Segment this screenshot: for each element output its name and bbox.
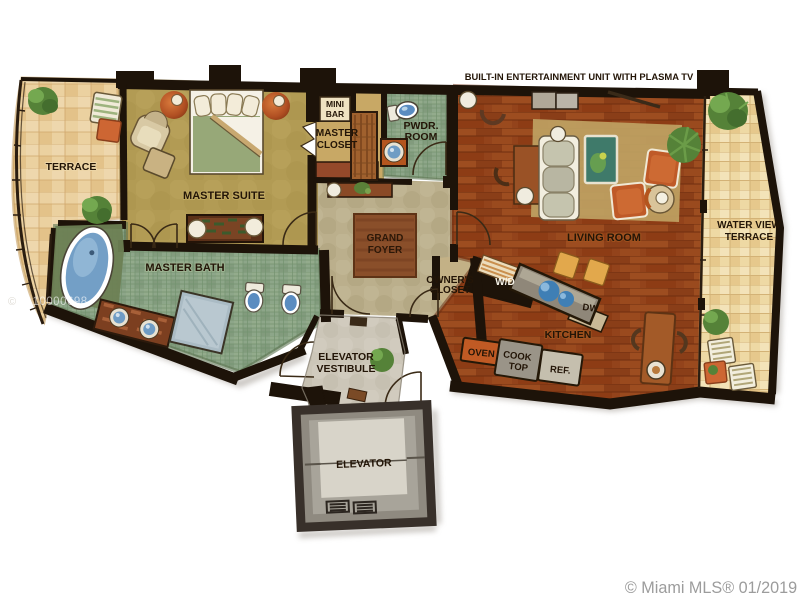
svg-text:TERRACE: TERRACE [46,161,97,173]
svg-text:W/D: W/D [495,277,514,288]
svg-text:KITCHEN: KITCHEN [545,329,592,341]
svg-text:MASTER: MASTER [316,128,359,139]
svg-text:CLOSET: CLOSET [317,140,358,151]
svg-text:ELEVATOR: ELEVATOR [336,457,392,471]
svg-text:VESTIBULE: VESTIBULE [317,363,376,375]
svg-text:CLOSET: CLOSET [430,285,471,296]
svg-text:WATER VIEW: WATER VIEW [717,220,781,231]
svg-text:LIVING ROOM: LIVING ROOM [567,232,641,244]
svg-text:©: © [8,296,16,308]
svg-text:A10000698: A10000698 [24,296,87,308]
svg-text:MINI: MINI [326,99,344,109]
svg-text:DW: DW [582,302,599,315]
svg-text:TERRACE: TERRACE [725,232,774,243]
svg-text:© Miami MLS® 01/2019: © Miami MLS® 01/2019 [625,579,797,597]
svg-text:OVEN: OVEN [467,347,495,360]
svg-text:FOYER: FOYER [368,245,403,256]
svg-text:REF.: REF. [549,364,570,377]
svg-text:ELEVATOR: ELEVATOR [318,351,374,363]
svg-text:ROOM: ROOM [405,131,438,143]
svg-text:BAR: BAR [326,109,344,119]
svg-text:MASTER BATH: MASTER BATH [145,262,224,274]
svg-text:GRAND: GRAND [367,233,404,244]
svg-text:BUILT-IN ENTERTAINMENT UNIT WI: BUILT-IN ENTERTAINMENT UNIT WITH PLASMA … [465,71,694,82]
svg-text:MASTER SUITE: MASTER SUITE [183,190,265,202]
